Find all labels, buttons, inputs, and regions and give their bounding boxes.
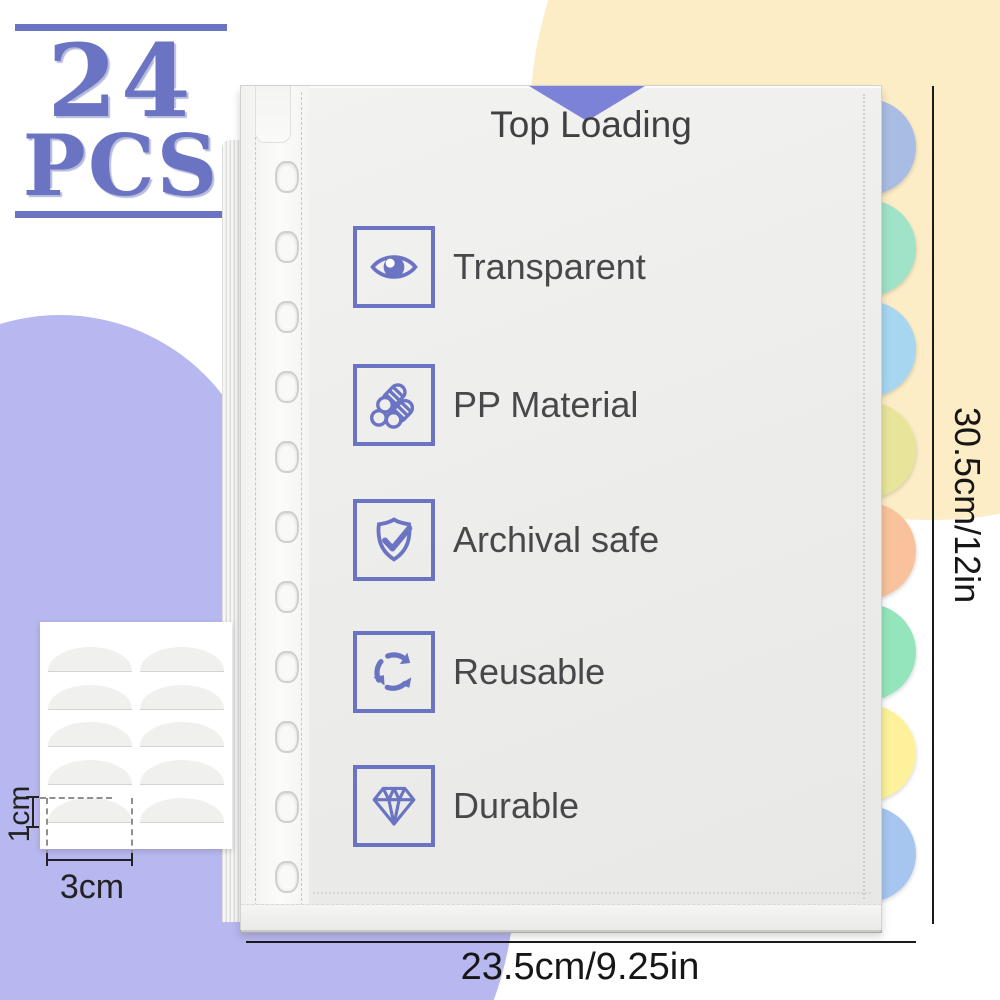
sticker-dash-right <box>131 798 133 856</box>
feature-label: Durable <box>453 765 579 847</box>
diamond-icon <box>353 765 435 847</box>
tab-sticker <box>140 647 224 672</box>
tab-sticker <box>140 798 224 823</box>
binder-hole <box>275 581 299 613</box>
top-loading-label: Top Loading <box>391 104 791 146</box>
binder-hole <box>275 791 299 823</box>
binder-hole <box>275 651 299 683</box>
binding-top-notch <box>255 86 291 143</box>
sticker-dash-left <box>46 798 48 856</box>
sheet-protector: Top Loading Transparent <box>240 85 882 930</box>
quantity-unit: PCS <box>8 125 234 207</box>
pocket-bottom-edge <box>241 904 881 932</box>
pocket-bottom-seam <box>313 892 871 894</box>
binder-hole <box>275 511 299 543</box>
sticker-tab-sheet <box>40 622 232 849</box>
binder-hole <box>275 371 299 403</box>
binder-hole <box>275 441 299 473</box>
feature-label: PP Material <box>453 364 638 446</box>
binding-seam-right <box>301 92 302 921</box>
binder-hole <box>275 861 299 893</box>
tab-sticker <box>48 647 132 672</box>
tab-width-bracket-tick-right <box>131 853 133 866</box>
tab-sticker <box>140 760 224 785</box>
shield-check-icon <box>353 499 435 581</box>
tab-sticker <box>48 760 132 785</box>
tab-width-label: 3cm <box>50 868 134 907</box>
tab-sticker <box>48 685 132 710</box>
tab-sticker <box>48 798 132 823</box>
height-dimension-label: 30.5cm/12in <box>936 80 998 930</box>
width-dimension-line <box>246 941 916 943</box>
tab-sticker <box>48 722 132 747</box>
feature-label: Archival safe <box>453 499 659 581</box>
tab-sticker <box>140 685 224 710</box>
feature-label: Transparent <box>453 226 646 308</box>
width-dimension-label: 23.5cm/9.25in <box>330 946 830 989</box>
binding-seam-left <box>255 92 256 921</box>
quantity-badge: 24 PCS <box>8 24 234 218</box>
eye-icon <box>353 226 435 308</box>
pocket-right-seam <box>863 94 865 899</box>
binder-hole <box>275 301 299 333</box>
recycle-icon <box>353 631 435 713</box>
tab-height-label: 1cm <box>0 788 46 840</box>
binder-hole <box>275 161 299 193</box>
material-rolls-icon <box>353 364 435 446</box>
tab-sticker <box>140 722 224 747</box>
binder-hole <box>275 721 299 753</box>
tab-width-bracket-tick-left <box>46 853 48 866</box>
binder-hole <box>275 231 299 263</box>
product-infographic: 24 PCS Top Loading <box>0 0 1000 1000</box>
sticker-dash-top <box>40 797 112 799</box>
feature-label: Reusable <box>453 631 605 713</box>
tab-width-bracket <box>46 859 133 861</box>
height-dimension-line <box>932 86 934 924</box>
